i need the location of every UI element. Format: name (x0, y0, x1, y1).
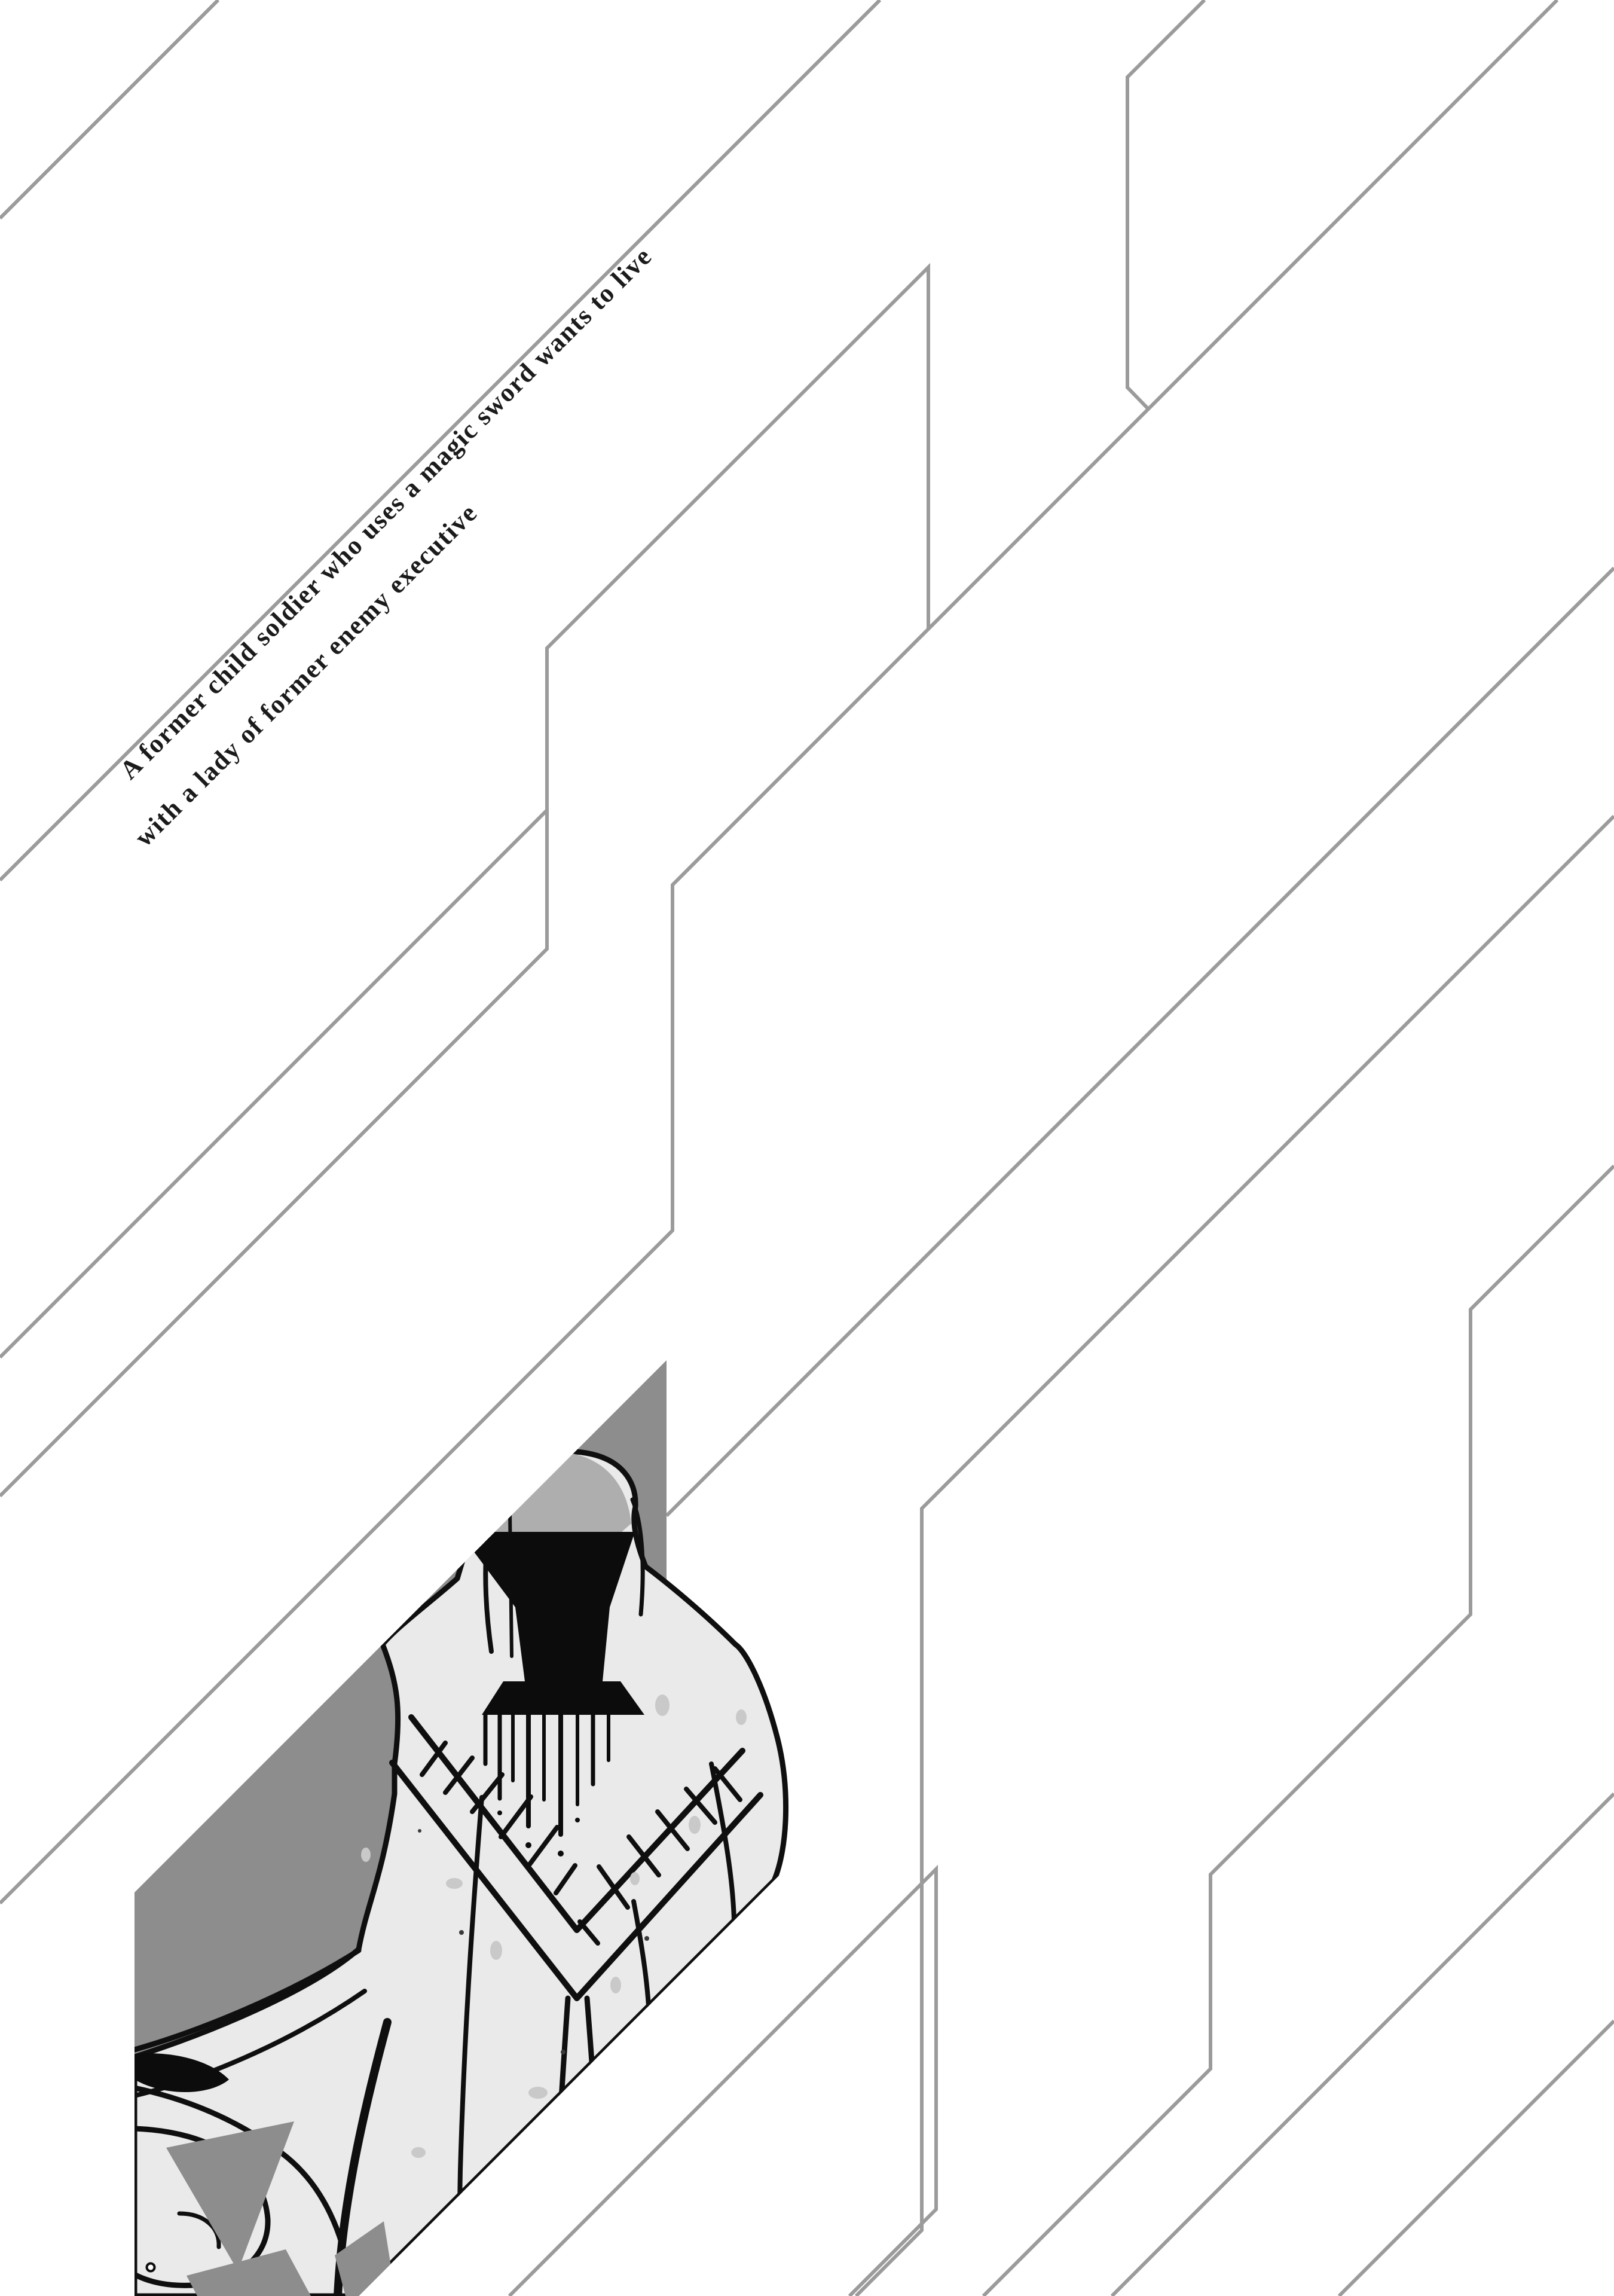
ribbon-line (1339, 2021, 1614, 2296)
ribbon-line (983, 1166, 1614, 2296)
decoration-circle (147, 2264, 155, 2271)
ribbon-line (0, 810, 547, 1357)
ribbon-line (0, 0, 1557, 1903)
ribbon-line (1127, 0, 1205, 409)
cover-art (0, 0, 1614, 2296)
ribbon-line (1112, 1794, 1614, 2296)
ribbon-line (856, 816, 1614, 2296)
figure-face-base (482, 1681, 644, 1715)
page-canvas: A former child soldier who uses a magic … (0, 0, 1614, 2296)
ribbon-line (0, 0, 218, 218)
